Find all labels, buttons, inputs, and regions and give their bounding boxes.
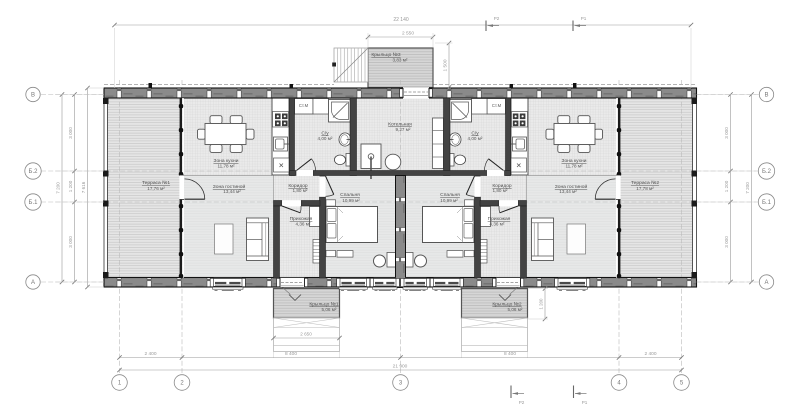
svg-text:13,44 м²: 13,44 м² (559, 189, 577, 194)
svg-text:Б.2: Б.2 (29, 169, 39, 175)
svg-text:2 550: 2 550 (402, 31, 414, 37)
svg-text:1,80 м²: 1,80 м² (493, 188, 508, 193)
svg-text:3 000: 3 000 (68, 127, 73, 139)
svg-text:7 200: 7 200 (745, 182, 750, 194)
svg-text:22 140: 22 140 (393, 17, 409, 23)
svg-text:17,76 м²: 17,76 м² (147, 186, 165, 191)
svg-text:7 200: 7 200 (56, 182, 61, 194)
svg-text:В: В (31, 92, 35, 98)
svg-text:11,78 м²: 11,78 м² (565, 164, 583, 169)
svg-text:3,83 м²: 3,83 м² (393, 58, 408, 63)
svg-text:7 616: 7 616 (81, 181, 86, 193)
svg-text:1 200: 1 200 (724, 180, 729, 192)
svg-text:Б.1: Б.1 (762, 200, 772, 206)
svg-text:3 000: 3 000 (724, 127, 729, 139)
svg-text:8 400: 8 400 (285, 351, 297, 357)
svg-text:8 400: 8 400 (504, 351, 516, 357)
svg-text:Терраса №2: Терраса №2 (631, 180, 659, 186)
svg-text:Ст.М: Ст.М (492, 103, 502, 108)
svg-text:3 000: 3 000 (724, 236, 729, 248)
svg-text:Б.1: Б.1 (29, 200, 39, 206)
svg-text:13,44 м²: 13,44 м² (223, 189, 241, 194)
svg-text:11,78 м²: 11,78 м² (217, 164, 235, 169)
svg-text:4,00 м²: 4,00 м² (318, 136, 333, 141)
svg-text:3 000: 3 000 (68, 236, 73, 248)
svg-text:Ст.М: Ст.М (299, 103, 309, 108)
svg-text:Б.2: Б.2 (762, 169, 772, 175)
svg-text:9,27 м²: 9,27 м² (396, 127, 411, 132)
svg-text:4,36 м²: 4,36 м² (296, 222, 311, 227)
svg-text:А: А (31, 280, 35, 286)
svg-text:10,99 м²: 10,99 м² (342, 198, 360, 203)
svg-text:1 500: 1 500 (443, 59, 449, 71)
svg-text:А: А (764, 280, 768, 286)
svg-text:1,80 м²: 1,80 м² (293, 188, 308, 193)
svg-text:17,78 м²: 17,78 м² (636, 186, 654, 191)
svg-text:1 200: 1 200 (68, 180, 73, 192)
svg-text:4,36 м²: 4,36 м² (490, 222, 505, 227)
svg-text:4,00 м²: 4,00 м² (468, 136, 483, 141)
svg-text:В: В (764, 92, 768, 98)
svg-text:Терраса №1: Терраса №1 (142, 180, 170, 186)
svg-text:2 650: 2 650 (300, 332, 312, 337)
svg-text:10,99 м²: 10,99 м² (440, 198, 458, 203)
svg-text:5,06 м²: 5,06 м² (322, 307, 337, 312)
svg-text:5,06 м²: 5,06 м² (508, 307, 523, 312)
svg-text:Р1: Р1 (581, 16, 587, 21)
svg-text:Р1: Р1 (582, 400, 588, 405)
svg-text:Р2: Р2 (519, 400, 525, 405)
svg-text:Спальня: Спальня (340, 192, 360, 198)
svg-text:2 400: 2 400 (644, 351, 656, 357)
svg-text:21 900: 21 900 (393, 364, 408, 370)
svg-text:1 200: 1 200 (539, 298, 544, 310)
svg-text:Р2: Р2 (494, 16, 500, 21)
svg-text:Спальня: Спальня (440, 192, 460, 198)
svg-text:2 400: 2 400 (144, 351, 156, 357)
